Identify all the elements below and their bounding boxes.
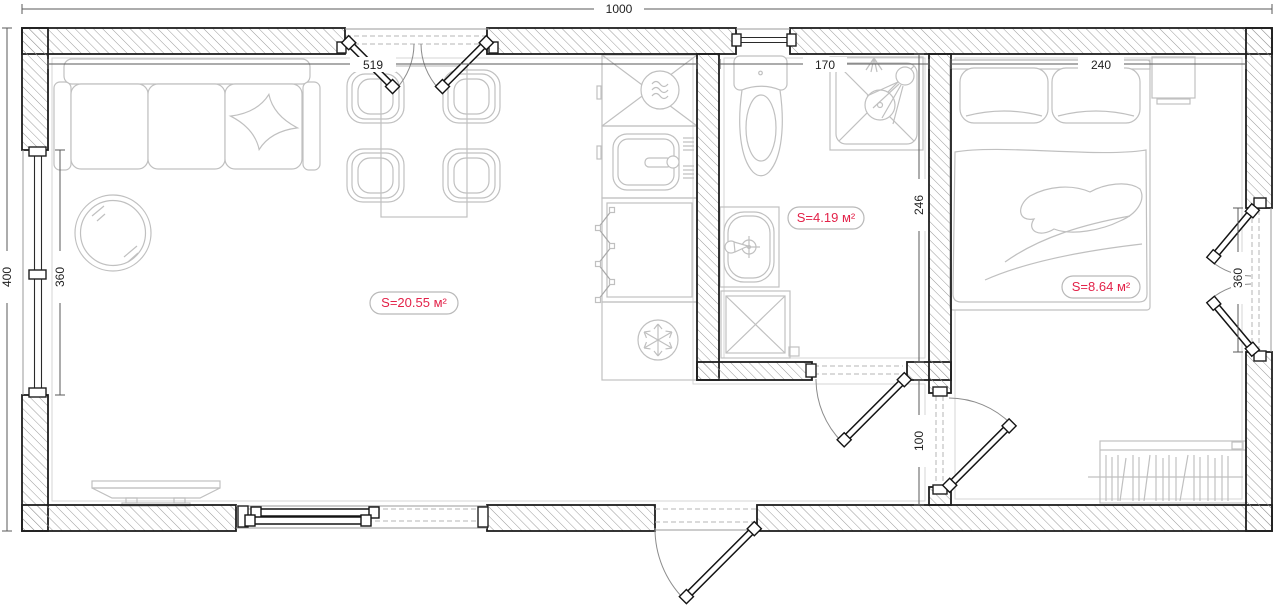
wall-living-bathroom	[697, 54, 719, 380]
area-label-text: S=20.55 м²	[381, 295, 447, 310]
bathroom-window	[732, 29, 796, 46]
books	[1106, 455, 1228, 501]
wall-top-right	[790, 28, 1272, 54]
wall-bathroom-bottom-left	[697, 362, 812, 380]
sliding-door	[236, 506, 488, 528]
kitchen-sink-unit	[602, 126, 697, 198]
shower-head-icon	[896, 67, 914, 85]
dim-hallway-depth: 100	[912, 380, 926, 505]
sprinkler-icon	[866, 58, 882, 72]
dining-set	[347, 66, 500, 217]
living-room-area-label: S=20.55 м²	[370, 292, 458, 314]
kitchen-column	[596, 55, 698, 380]
dim-label: 100	[912, 431, 926, 451]
sofa-armrest-right	[303, 82, 320, 170]
wall-bottom-left	[22, 505, 236, 531]
bedroom-area-label: S=8.64 м²	[1062, 276, 1140, 298]
washing-machine-unit	[602, 55, 697, 126]
dim-label: 170	[815, 58, 835, 72]
dim-overall-width: 1000	[22, 1, 1272, 16]
wall-bathroom-bedroom	[929, 54, 951, 393]
bed	[950, 60, 1150, 310]
round-table	[75, 195, 151, 271]
wall-left-upper	[22, 28, 48, 150]
dim-label: 400	[0, 267, 14, 287]
wall-bottom-middle	[487, 505, 655, 531]
toilet	[734, 56, 787, 176]
snowflake-icon	[642, 324, 674, 356]
wall-bottom-right	[757, 505, 1272, 531]
wall-top-left	[22, 28, 345, 54]
dim-label: 240	[1091, 58, 1111, 72]
living-room	[54, 59, 500, 506]
sofa-cushion	[71, 84, 148, 169]
bedroom-door	[933, 387, 1016, 494]
bathroom-cabinet	[721, 291, 799, 358]
area-label-text: S=8.64 м²	[1072, 279, 1131, 294]
cabinet-handle	[597, 86, 601, 99]
bathroom-area-label: S=4.19 м²	[788, 207, 864, 229]
dim-overall-depth: 400	[0, 28, 15, 531]
wall-top-middle	[487, 28, 736, 54]
dim-label: 360	[53, 267, 67, 287]
floor-plan: 1000 400 519 360 170	[0, 0, 1280, 606]
sofa-back	[64, 59, 310, 84]
chair	[347, 149, 404, 202]
area-label-text: S=4.19 м²	[797, 210, 856, 225]
dim-label: 1000	[606, 2, 633, 16]
dim-label: 246	[912, 195, 926, 215]
cabinet-handle	[597, 146, 601, 159]
dim-label: 360	[1231, 268, 1245, 288]
chair	[443, 149, 500, 202]
left-window	[23, 147, 46, 397]
sliding-panel	[245, 515, 371, 526]
tv-screen	[92, 481, 220, 488]
wall-right-lower	[1246, 352, 1272, 531]
door-leaf	[679, 522, 761, 604]
fridge	[602, 302, 697, 380]
bathroom-door	[806, 364, 911, 447]
toilet-tank	[734, 56, 787, 90]
dim-label: 519	[363, 58, 383, 72]
tv	[92, 481, 220, 506]
counter-unit	[602, 198, 697, 302]
wall-right-upper	[1246, 28, 1272, 208]
door-leaf	[943, 419, 1017, 493]
floor-plan-drawing: 1000 400 519 360 170	[0, 0, 1280, 606]
chair	[347, 70, 404, 123]
dim-bathroom-depth: 246	[912, 54, 926, 362]
bookshelf	[1088, 441, 1246, 503]
sofa-cushion	[148, 84, 225, 169]
sofa-armrest-left	[54, 82, 71, 170]
bifold-door	[596, 208, 615, 303]
entrance-door	[655, 509, 761, 604]
dim-left-window: 360	[53, 150, 67, 395]
sofa	[54, 59, 320, 170]
washbasin	[720, 207, 779, 287]
